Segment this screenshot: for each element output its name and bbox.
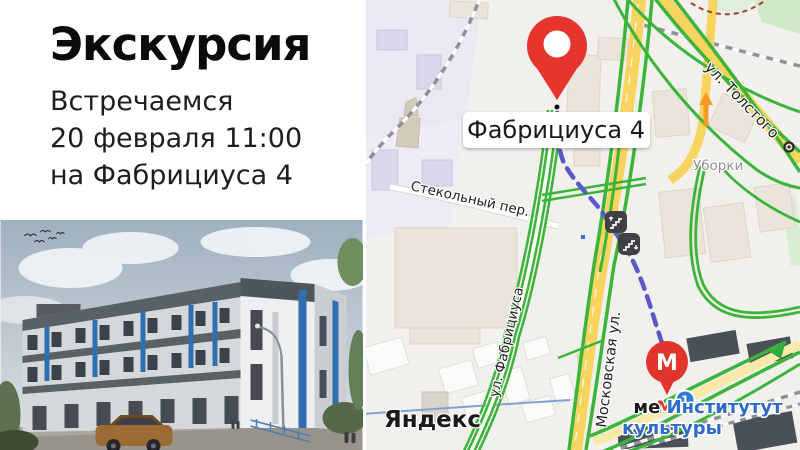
announcement-text: Экскурсия Встречаемся 20 февраля 11:00 н…	[50, 18, 350, 194]
map-panel[interactable]: Стекольный пер. ул. Фабрициуса Московска…	[366, 0, 800, 450]
page-title: Экскурсия	[50, 18, 350, 71]
camera-icon-dot	[787, 145, 790, 148]
flyer: Экскурсия Встречаемся 20 февраля 11:00 н…	[0, 0, 800, 450]
metro-balloon-letter: М	[656, 351, 678, 376]
district-label: Уборки	[693, 158, 743, 174]
building-photo	[0, 220, 363, 450]
metro-station-label-line1: ме Институтут	[633, 397, 783, 418]
yandex-watermark: Яндекс	[384, 407, 481, 433]
announcement-line: на Фабрициуса 4	[50, 157, 350, 194]
pin-label: Фабрициуса 4	[463, 112, 650, 148]
announcement-line: 20 февраля 11:00	[50, 120, 350, 157]
stairs-down-icon	[618, 233, 640, 255]
entrance-marker	[581, 235, 585, 239]
metro-balloon-icon[interactable]: М	[646, 341, 688, 395]
building-render	[0, 220, 363, 450]
map-canvas[interactable]: Стекольный пер. ул. Фабрициуса Московска…	[366, 0, 800, 450]
announcement-line: Встречаемся	[50, 83, 350, 120]
building-tower	[241, 278, 315, 428]
stairs-up-icon	[605, 211, 627, 233]
metro-station-label-line2: культуры	[622, 418, 722, 439]
pin-label-text: Фабрициуса 4	[467, 116, 645, 144]
